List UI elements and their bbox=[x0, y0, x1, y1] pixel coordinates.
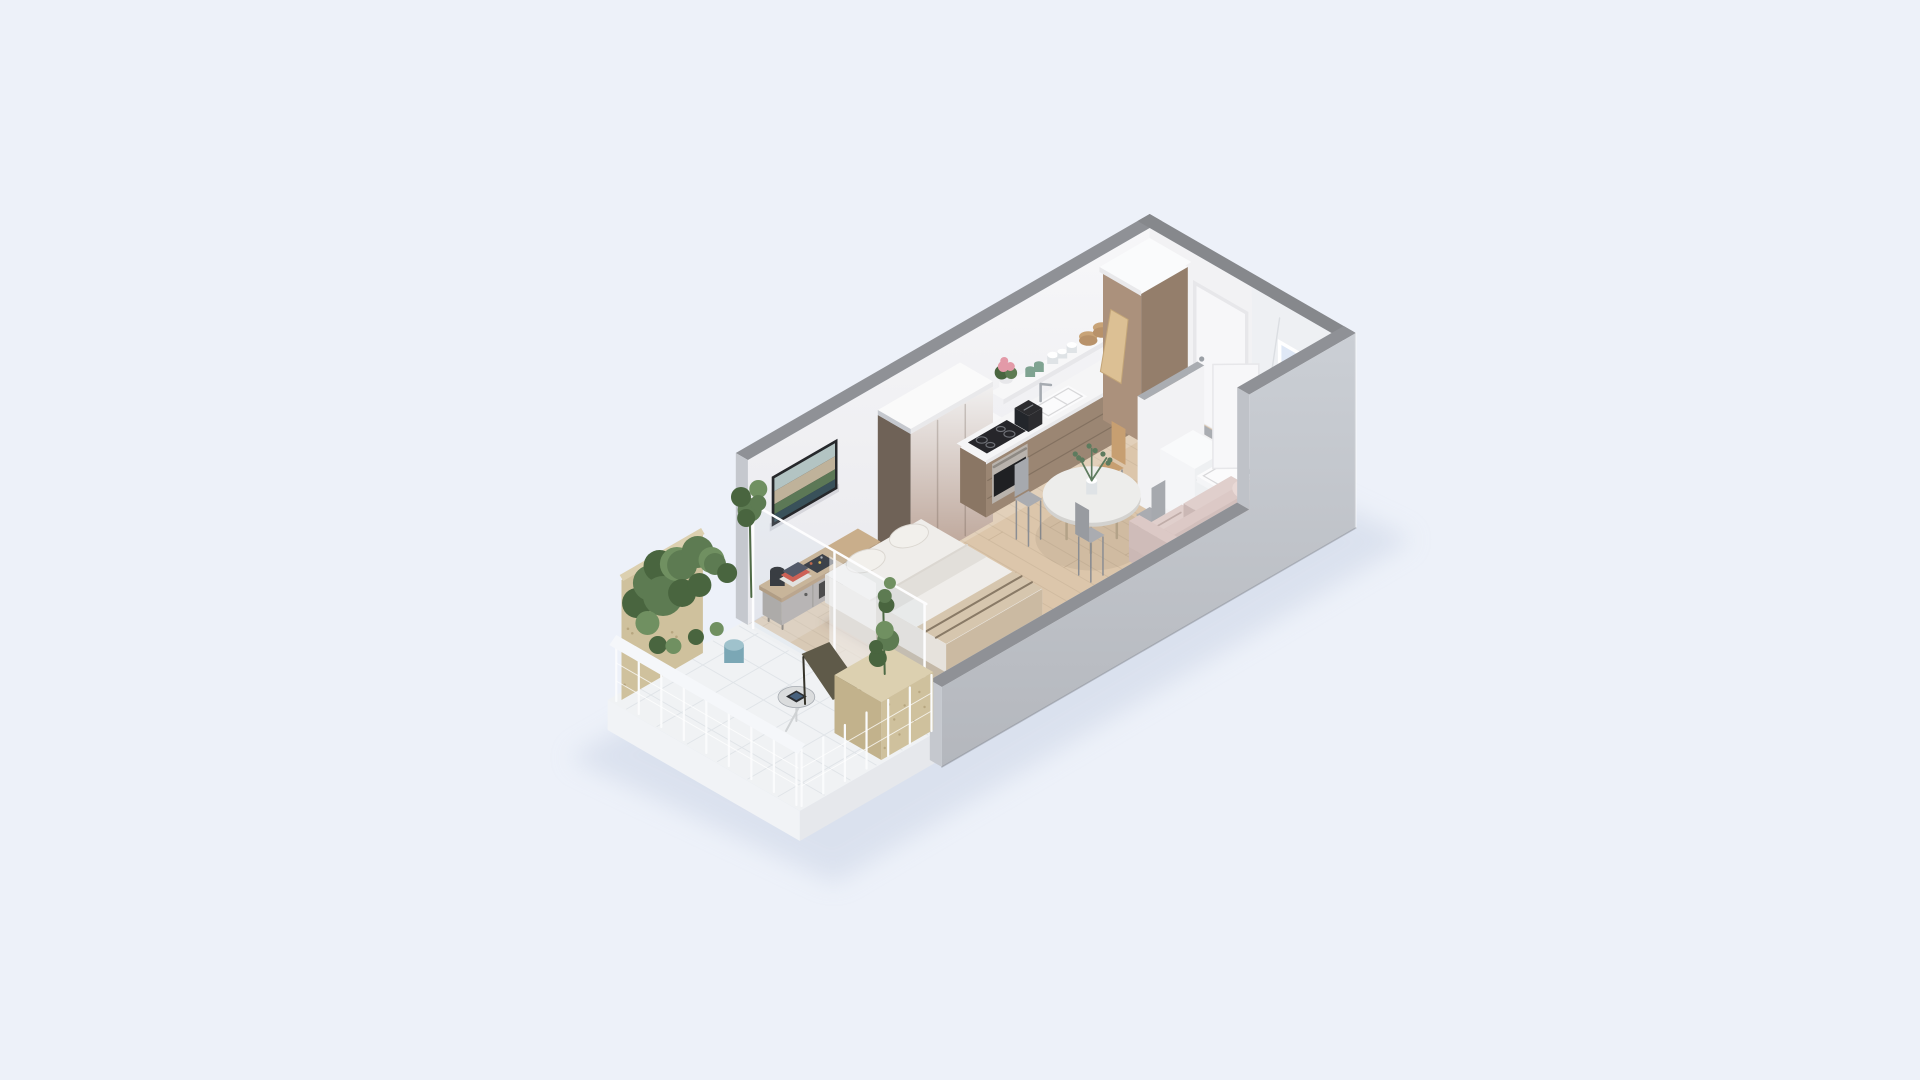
eucalyptus-leaf bbox=[1076, 455, 1081, 460]
eucalyptus-leaf bbox=[1100, 451, 1105, 456]
balcony-plant bbox=[688, 629, 704, 645]
eucalyptus-leaf bbox=[1073, 451, 1078, 456]
planter-plant bbox=[878, 589, 892, 603]
blue-pot-top bbox=[724, 639, 744, 650]
balcony-plant bbox=[687, 573, 711, 597]
plywood-dot bbox=[627, 627, 630, 630]
planter-dot bbox=[923, 706, 925, 708]
plywood-dot bbox=[675, 635, 678, 638]
flower-bloom bbox=[1000, 357, 1008, 365]
planter-plant bbox=[869, 640, 883, 654]
balcony-plant bbox=[710, 622, 724, 636]
cooktop-ring bbox=[976, 437, 987, 443]
glass-cup-top bbox=[1047, 352, 1058, 358]
green-cup-top bbox=[1034, 361, 1044, 367]
isometric-floorplan-svg: Isometric 3D cutaway floor plan render o… bbox=[0, 0, 1920, 1080]
cooktop-ring bbox=[1004, 431, 1015, 437]
green-cup-top bbox=[1025, 366, 1035, 372]
se-wall-step-cap bbox=[1237, 388, 1249, 510]
planter-dot bbox=[898, 733, 900, 735]
cooktop-ring bbox=[986, 443, 995, 448]
tall-plant bbox=[750, 495, 766, 511]
faucet-spout bbox=[1041, 384, 1051, 385]
plywood-dot bbox=[631, 632, 634, 635]
cooktop-ring bbox=[996, 427, 1005, 432]
plywood-dot bbox=[671, 631, 674, 634]
wooden-bowl bbox=[1079, 335, 1097, 346]
balcony-plant bbox=[717, 563, 737, 583]
eucalyptus-leaf bbox=[1087, 443, 1092, 448]
eucalyptus-leaf bbox=[1106, 460, 1111, 465]
planter-plant bbox=[884, 577, 896, 589]
eucalyptus-leaf bbox=[1093, 448, 1098, 453]
balcony-plant bbox=[649, 636, 667, 654]
planter-plant bbox=[876, 621, 894, 639]
planter-dot bbox=[893, 718, 895, 720]
balcony-plant bbox=[635, 611, 659, 635]
nw-wall-end-cap bbox=[736, 453, 748, 625]
planter-dot bbox=[884, 747, 886, 749]
glass-cup-top bbox=[1067, 342, 1077, 348]
entrance-door-handle bbox=[1199, 356, 1204, 361]
tall-plant bbox=[737, 509, 755, 527]
tall-plant bbox=[731, 487, 751, 507]
glass-cup-top bbox=[1057, 349, 1067, 355]
planter-dot bbox=[918, 691, 920, 693]
balcony-plant bbox=[665, 638, 681, 654]
planter-dot bbox=[903, 704, 905, 706]
apartment-render: Isometric 3D cutaway floor plan render o… bbox=[0, 0, 1920, 1080]
